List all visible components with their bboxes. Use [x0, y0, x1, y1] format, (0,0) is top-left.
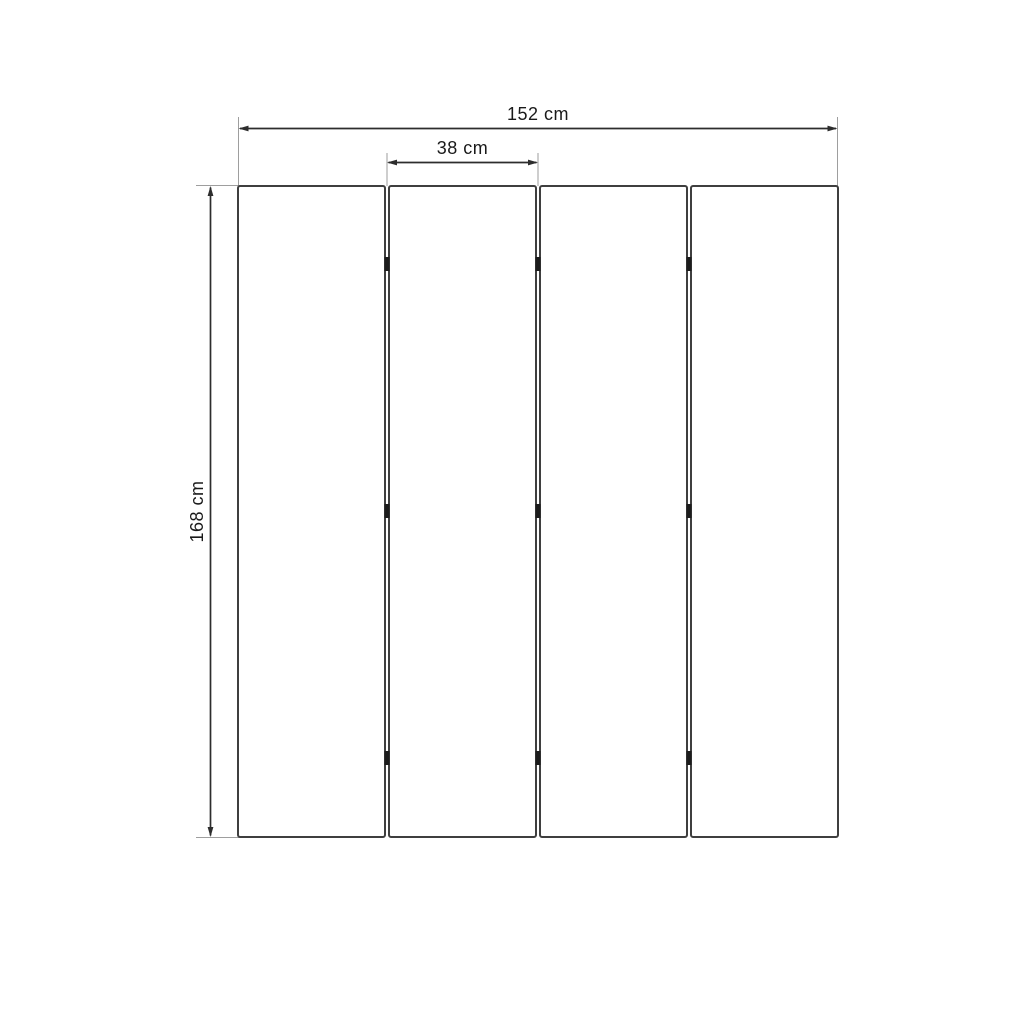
hinge-icon	[536, 751, 541, 765]
height-label: 168 cm	[187, 480, 207, 542]
panel-width-label: 38 cm	[437, 138, 489, 158]
hinge-icon	[536, 257, 541, 271]
hinge-icon	[385, 751, 390, 765]
dimension-panel-width: 38 cm	[387, 138, 538, 165]
folding-screen-diagram: 152 cm 38 cm 168 cm	[0, 0, 1024, 1024]
total-width-label: 152 cm	[507, 104, 569, 124]
panel-1	[238, 186, 385, 837]
arrow-left-icon	[239, 126, 249, 132]
hinge-icon	[687, 751, 692, 765]
panel-2	[389, 186, 536, 837]
hinge-icon	[687, 257, 692, 271]
arrow-right-icon	[528, 160, 538, 166]
arrow-left-icon	[387, 160, 397, 166]
hinge-icon	[687, 504, 692, 518]
dimension-total-width: 152 cm	[239, 104, 838, 131]
hinge-icon	[385, 257, 390, 271]
dimension-height: 168 cm	[187, 186, 213, 837]
arrow-up-icon	[208, 186, 214, 196]
hinge-icon	[385, 504, 390, 518]
panel-3	[540, 186, 687, 837]
hinge-icon	[536, 504, 541, 518]
dimension-drawing-canvas: 152 cm 38 cm 168 cm	[0, 0, 1024, 1024]
arrow-down-icon	[208, 827, 214, 837]
panel-4	[691, 186, 838, 837]
arrow-right-icon	[828, 126, 838, 132]
